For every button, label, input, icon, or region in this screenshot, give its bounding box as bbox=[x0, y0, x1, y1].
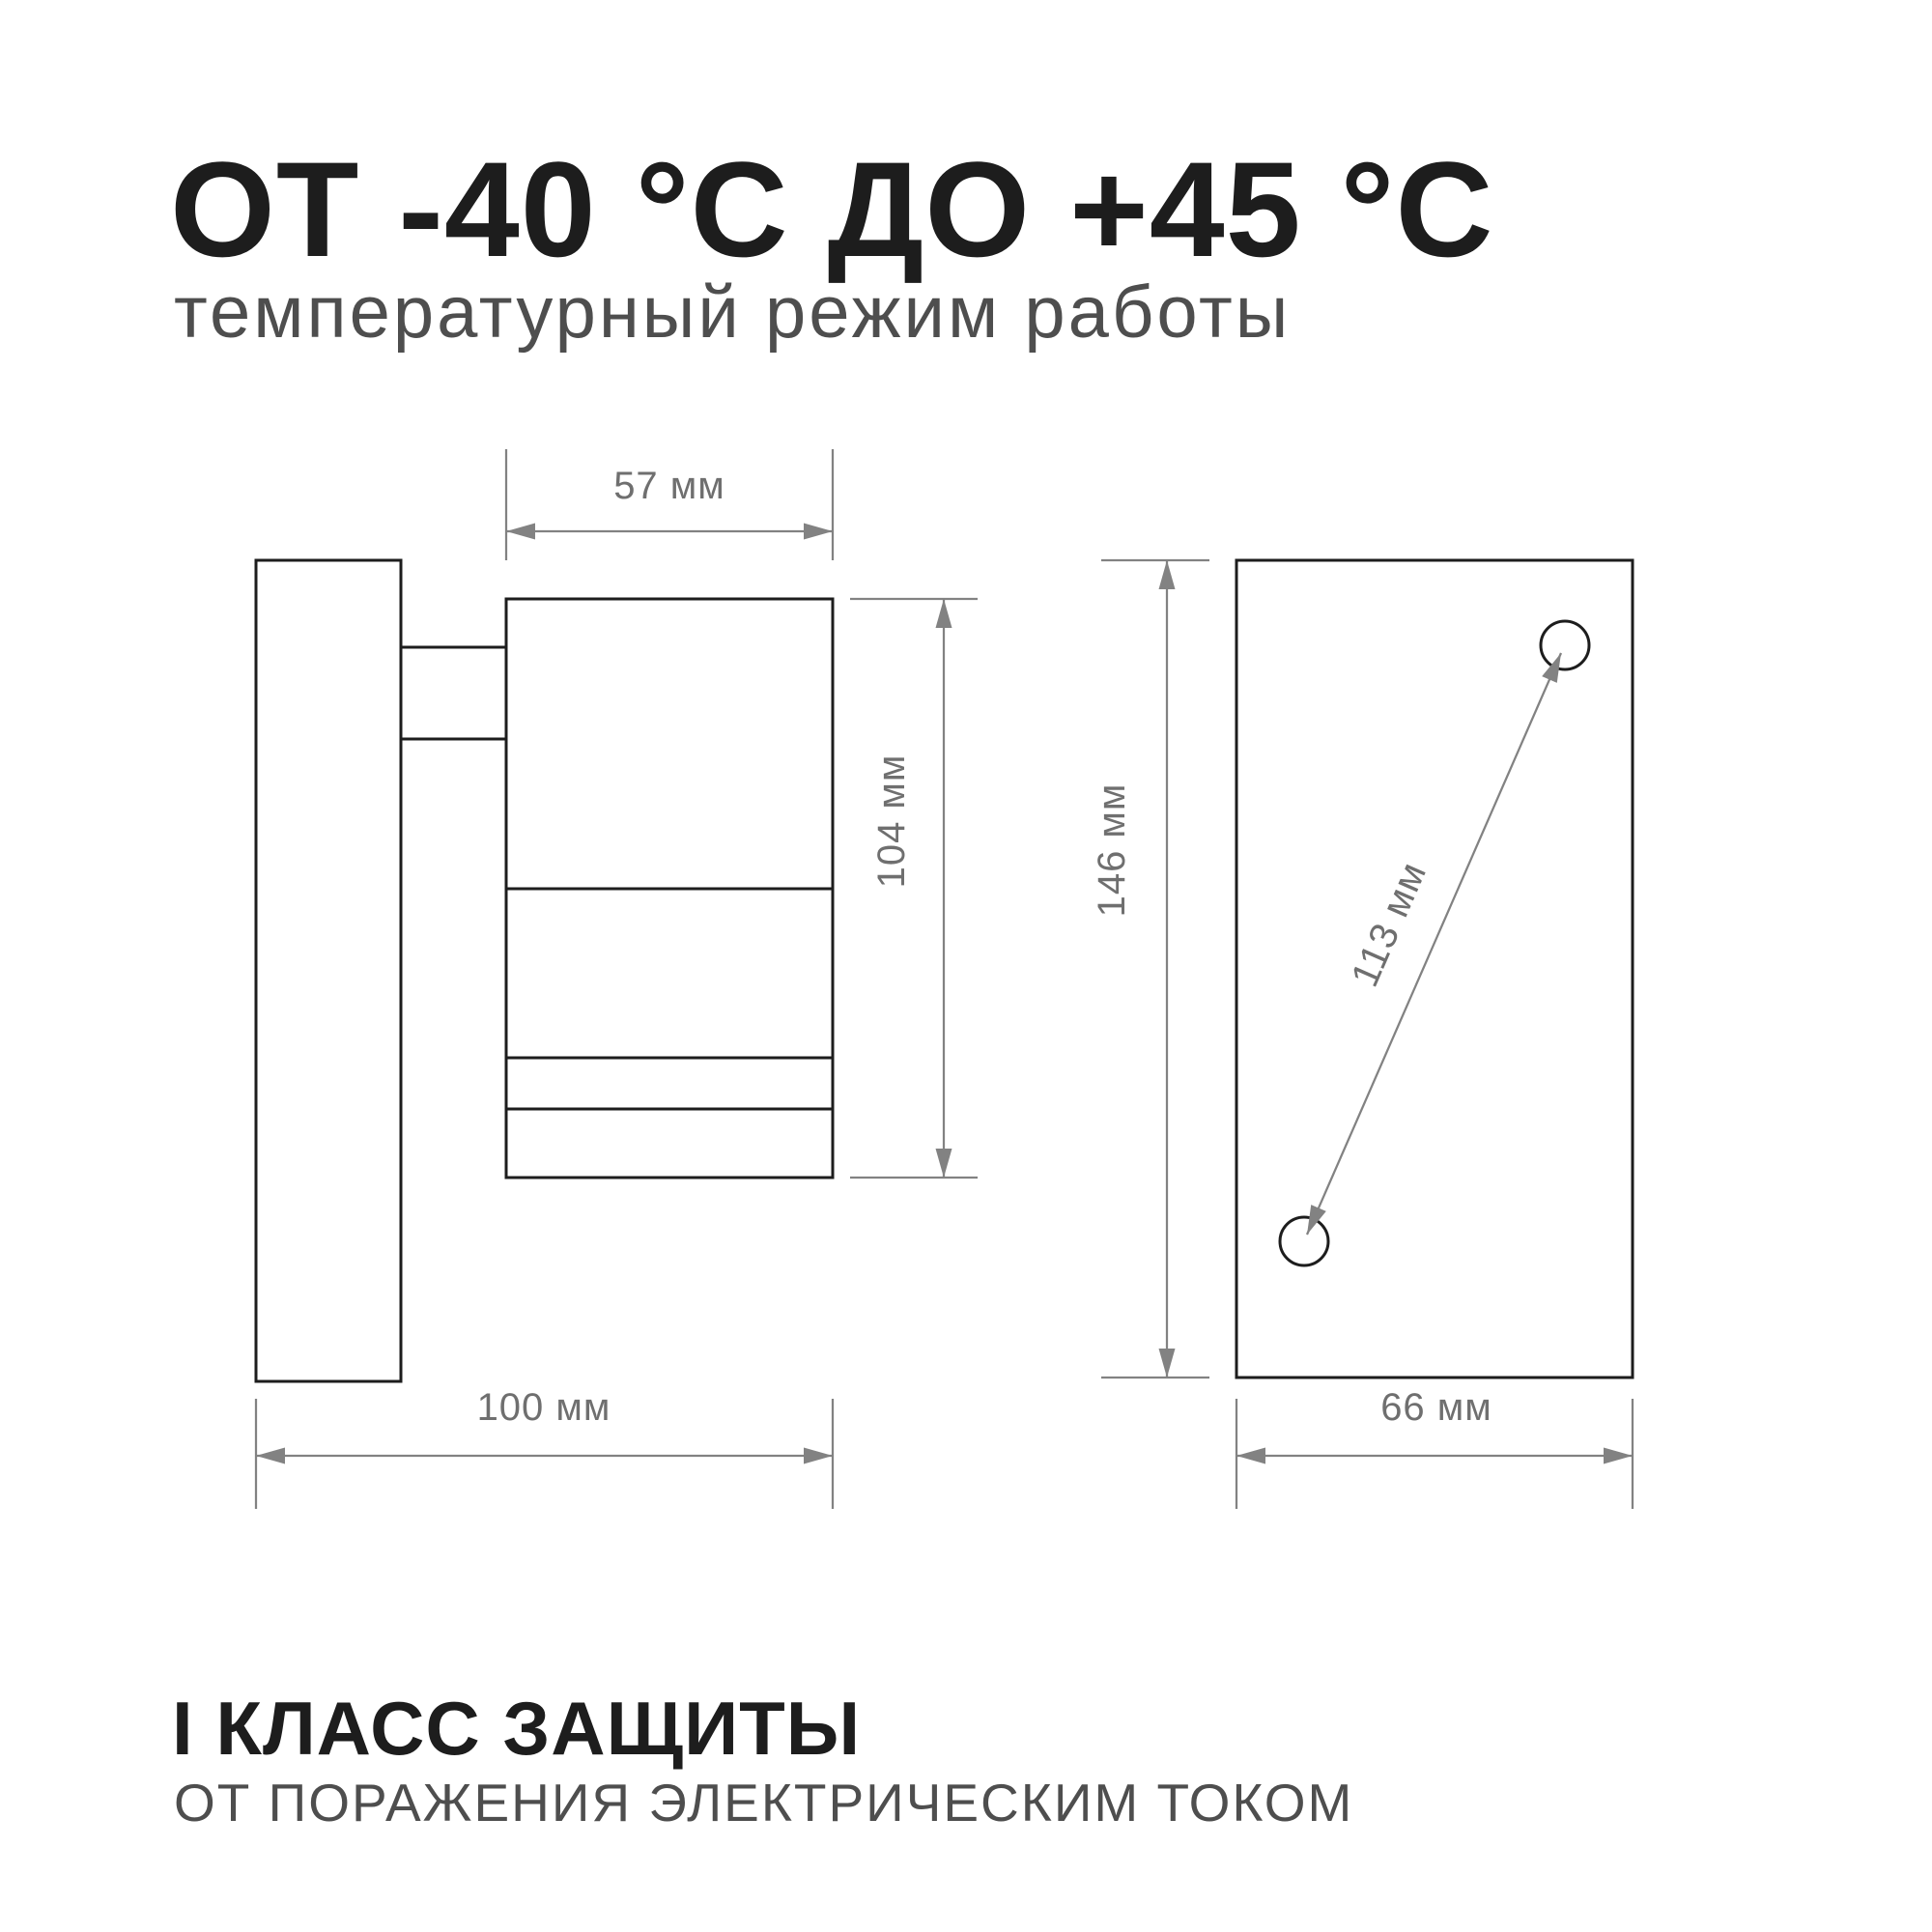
arrowhead-icon bbox=[1159, 1349, 1176, 1378]
arrowhead-icon bbox=[1236, 1448, 1265, 1464]
arrowhead-icon bbox=[804, 1448, 833, 1464]
dimension-body-height: 104 мм bbox=[850, 599, 978, 1178]
plate-height-label: 146 мм bbox=[1091, 783, 1133, 918]
dimension-body-width: 57 мм bbox=[506, 449, 833, 560]
dimension-plate-width: 66 мм bbox=[1236, 1386, 1633, 1509]
arrowhead-icon bbox=[936, 599, 952, 628]
side-view-drawing: 57 мм 104 мм 100 мм bbox=[256, 449, 978, 1509]
protection-class-subtitle: ОТ ПОРАЖЕНИЯ ЭЛЕКТРИЧЕСКИМ ТОКОМ bbox=[174, 1772, 1353, 1833]
dimension-total-depth: 100 мм bbox=[256, 1386, 833, 1509]
total-depth-label: 100 мм bbox=[477, 1386, 611, 1429]
infographic-page: ОТ -40 °С ДО +45 °С температурный режим … bbox=[0, 0, 1932, 1932]
technical-drawing: 57 мм 104 мм 100 мм bbox=[0, 0, 1932, 1932]
dimension-plate-height: 146 мм bbox=[1091, 560, 1209, 1378]
arrowhead-icon bbox=[506, 524, 535, 540]
plate-width-label: 66 мм bbox=[1380, 1386, 1492, 1429]
arrowhead-icon bbox=[1159, 560, 1176, 589]
mounting-hole-bottom bbox=[1280, 1217, 1328, 1265]
body-width-label: 57 мм bbox=[613, 465, 725, 507]
protection-class-title: I КЛАСС ЗАЩИТЫ bbox=[172, 1685, 861, 1773]
wall-plate-outline bbox=[256, 560, 401, 1381]
mounting-hole-top bbox=[1541, 621, 1589, 669]
arrowhead-icon bbox=[256, 1448, 285, 1464]
body-height-label: 104 мм bbox=[870, 754, 913, 889]
back-plate-drawing: 113 мм 146 мм 66 мм bbox=[1091, 560, 1633, 1509]
arrowhead-icon bbox=[936, 1149, 952, 1178]
arrowhead-icon bbox=[1604, 1448, 1633, 1464]
arrowhead-icon bbox=[804, 524, 833, 540]
